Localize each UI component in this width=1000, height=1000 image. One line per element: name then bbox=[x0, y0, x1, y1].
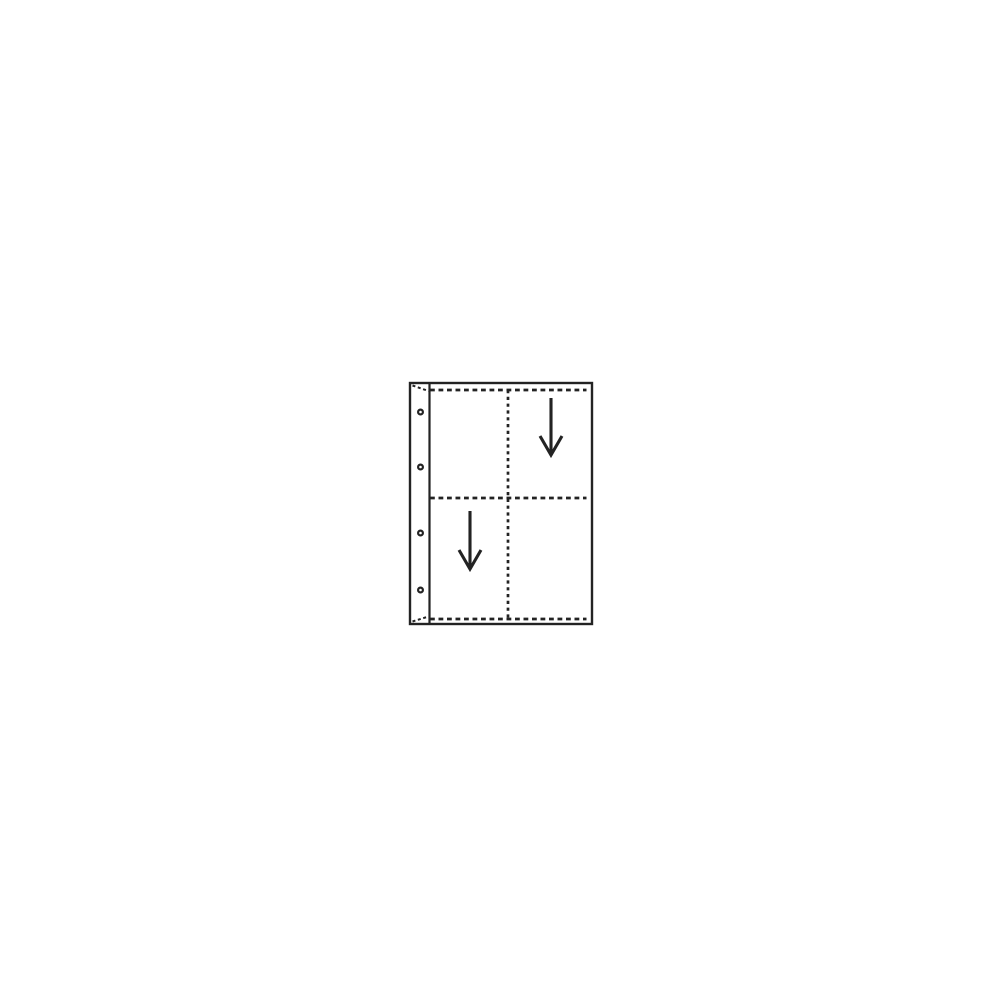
sheet-outline bbox=[410, 383, 592, 624]
binder-hole-1 bbox=[418, 410, 423, 415]
four-pocket-binder-page-diagram bbox=[0, 0, 1000, 1000]
binder-hole-2 bbox=[418, 465, 423, 470]
diagram-canvas bbox=[0, 0, 1000, 1000]
binder-hole-3 bbox=[418, 531, 423, 536]
binder-hole-4 bbox=[418, 588, 423, 593]
